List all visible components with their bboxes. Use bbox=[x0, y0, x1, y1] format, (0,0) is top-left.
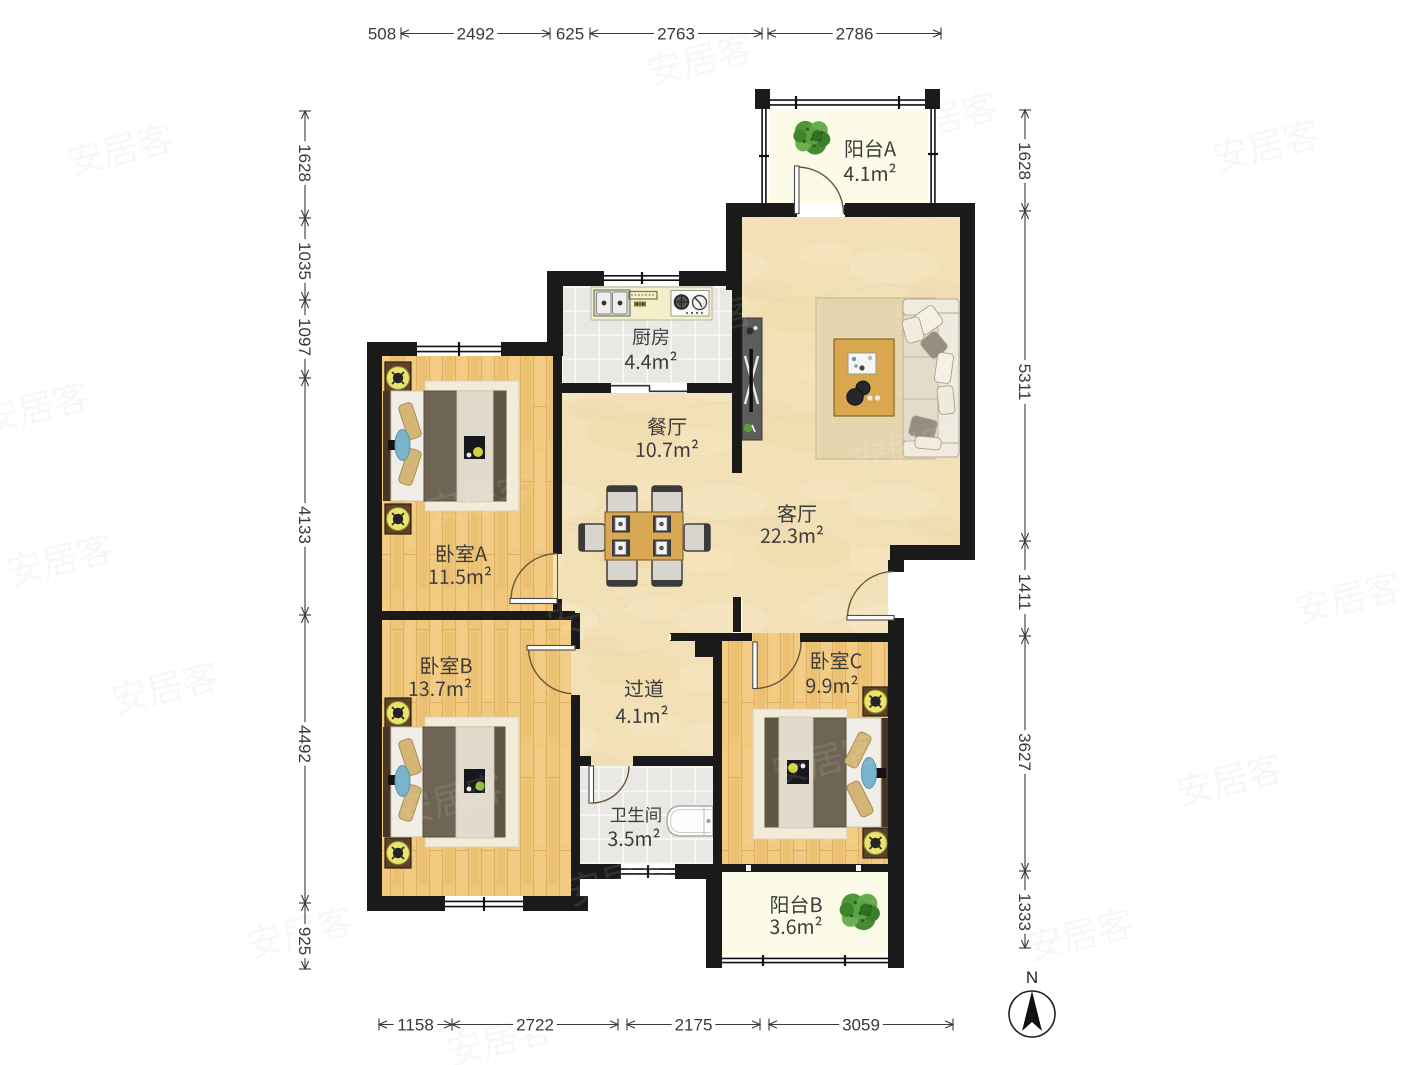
svg-text:N: N bbox=[1026, 968, 1038, 987]
svg-text:1628: 1628 bbox=[1015, 142, 1034, 180]
svg-text:2722: 2722 bbox=[516, 1016, 554, 1035]
svg-text:5311: 5311 bbox=[1015, 364, 1034, 401]
svg-text:1158: 1158 bbox=[397, 1016, 434, 1035]
svg-text:1035: 1035 bbox=[295, 242, 314, 280]
svg-text:2763: 2763 bbox=[657, 25, 695, 44]
svg-text:4492: 4492 bbox=[295, 725, 314, 763]
svg-text:3059: 3059 bbox=[842, 1016, 880, 1035]
svg-text:3627: 3627 bbox=[1015, 733, 1034, 771]
svg-text:1097: 1097 bbox=[295, 318, 314, 356]
svg-text:2786: 2786 bbox=[836, 25, 874, 44]
svg-text:1411: 1411 bbox=[1015, 574, 1034, 611]
svg-text:1628: 1628 bbox=[295, 144, 314, 182]
svg-text:1333: 1333 bbox=[1015, 893, 1034, 931]
svg-text:625: 625 bbox=[556, 25, 584, 44]
svg-text:925: 925 bbox=[295, 927, 314, 955]
svg-text:2492: 2492 bbox=[457, 25, 495, 44]
svg-text:2175: 2175 bbox=[675, 1016, 713, 1035]
svg-text:4133: 4133 bbox=[295, 506, 314, 544]
svg-text:508: 508 bbox=[368, 25, 396, 44]
